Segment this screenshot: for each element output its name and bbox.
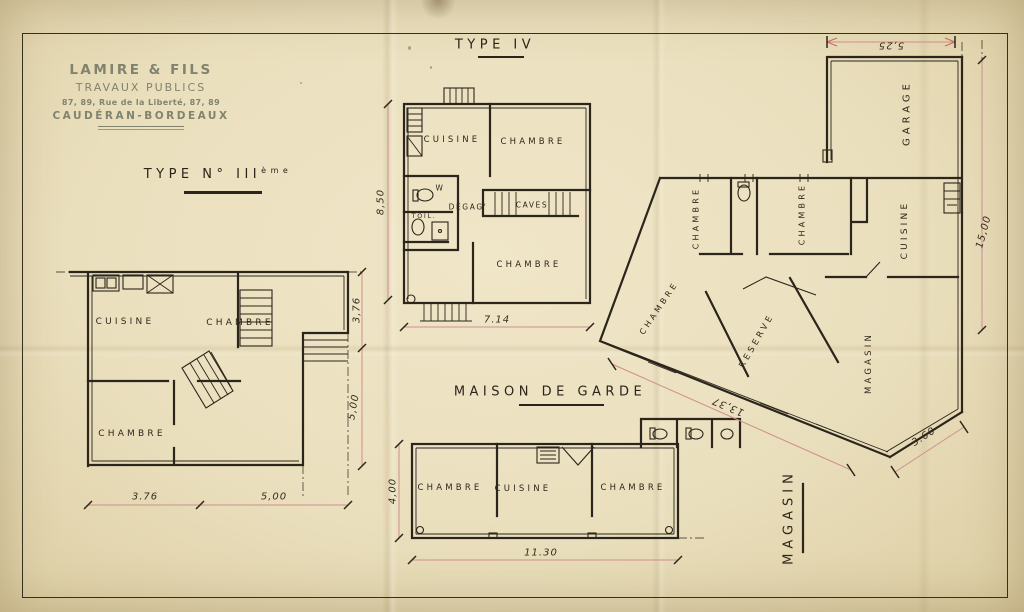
company-name: LAMIRE & FILS: [46, 60, 236, 80]
magasin-label-exterior: MAGASIN: [782, 469, 797, 565]
title-type3-text: TYPE N° III: [144, 167, 261, 182]
magasin-room-chambre-mid: CHAMBRE: [798, 183, 807, 245]
blueprint-sheet: LAMIRE & FILS TRAVAUX PUBLICS 87, 89, Ru…: [0, 0, 1024, 612]
type3-room-cuisine: CUISINE: [96, 317, 155, 327]
company-city: CAUDÉRAN-BORDEAUX: [46, 109, 236, 125]
type3-dim-right-top: 3,76: [352, 297, 363, 323]
mdg-dim-left: 4,00: [388, 478, 399, 504]
type4-room-caves: CAVES: [516, 201, 549, 210]
mdg-room-chambre-left: CHAMBRE: [418, 483, 483, 493]
type4-plan-walls: [384, 88, 594, 331]
type3-dim-bottom-right: 5,00: [261, 492, 287, 503]
magasin-room-cuisine: CUISINE: [900, 201, 910, 260]
title-type3: TYPE N° IIIème: [144, 166, 293, 182]
magasin-dim-top: 5,25: [878, 40, 904, 51]
type4-room-chambre-top: CHAMBRE: [501, 137, 566, 147]
magasin-room-magasin-inner: MAGASIN: [864, 332, 874, 394]
title-maison-underline: [519, 404, 604, 406]
company-address: 87, 89, Rue de la Liberté, 87, 89: [46, 97, 236, 109]
type3-plan-walls: [56, 268, 366, 509]
type3-room-chambre-top: CHAMBRE: [206, 318, 274, 328]
mdg-room-cuisine: CUISINE: [495, 484, 552, 494]
title-type3-sup: ème: [261, 166, 292, 175]
title-maison-de-garde: MAISON DE GARDE: [454, 385, 646, 400]
mdg-room-chambre-right: CHAMBRE: [601, 483, 666, 493]
magasin-room-garage: GARAGE: [902, 80, 913, 146]
type3-room-chambre-bottom: CHAMBRE: [98, 429, 166, 439]
stamp-flourish: [98, 126, 184, 130]
type4-room-toilette: TOIL.: [412, 212, 437, 220]
type4-room-chambre-bottom: CHAMBRE: [497, 260, 562, 270]
magasin-room-chambre-left: CHAMBRE: [692, 187, 701, 249]
type4-room-degagement: DÉGAG': [449, 203, 488, 212]
type4-dim-left: 8,50: [376, 189, 387, 215]
type4-room-wc: W: [435, 184, 444, 193]
company-stamp: LAMIRE & FILS TRAVAUX PUBLICS 87, 89, Ru…: [46, 60, 236, 130]
type3-dim-bottom-left: 3.76: [132, 492, 158, 503]
title-type4-underline: [478, 56, 524, 58]
title-type3-underline: [184, 191, 262, 194]
company-subtitle: TRAVAUX PUBLICS: [46, 80, 236, 97]
title-type4: TYPE IV: [455, 38, 535, 53]
type4-room-cuisine: CUISINE: [424, 135, 481, 145]
mdg-dim-bottom: 11.30: [524, 548, 558, 559]
type4-dim-bottom: 7.14: [484, 315, 510, 326]
